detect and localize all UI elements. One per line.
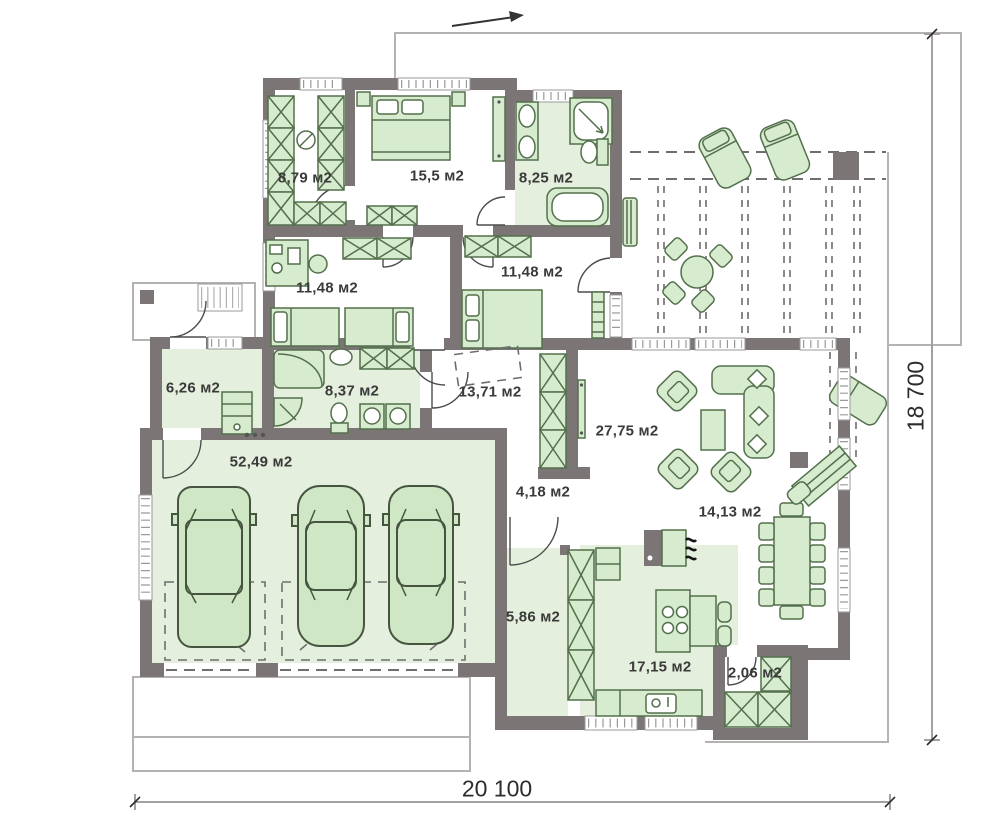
room-label-passage: 5,86 м2 <box>506 609 560 626</box>
room-label-bathroom-1: 8,25 м2 <box>519 170 573 187</box>
driveway-outline <box>133 677 470 771</box>
window <box>632 338 690 350</box>
room-label-wardrobe: 8,79 м2 <box>278 170 332 187</box>
window <box>398 78 470 90</box>
room-label-living: 27,75 м2 <box>596 423 659 440</box>
terrace-table-set <box>661 236 733 313</box>
window <box>139 495 152 600</box>
sun-lounger-1 <box>696 125 754 191</box>
room-label-bedroom-1: 15,5 м2 <box>410 168 464 185</box>
dimension-height: 18 700 <box>903 361 930 431</box>
toilet <box>581 139 608 165</box>
entrance-arrow <box>452 11 524 26</box>
window <box>645 716 697 730</box>
car-sedan-1 <box>292 486 370 646</box>
window <box>208 337 242 349</box>
floor-plan: 8,79 м2 15,5 м2 8,25 м2 11,48 м2 11,48 м… <box>0 0 1000 822</box>
room-label-corridor: 13,71 м2 <box>459 384 522 401</box>
double-bed <box>462 290 542 348</box>
terrace-bench <box>623 198 637 246</box>
window <box>610 295 622 337</box>
room-label-bedroom-3: 11,48 м2 <box>501 264 563 281</box>
single-bed <box>271 308 339 346</box>
coffee-table <box>701 410 725 450</box>
armchair <box>654 368 699 413</box>
armchair <box>655 446 700 491</box>
sun-lounger-3 <box>827 372 890 428</box>
porch-column <box>140 290 154 304</box>
car-suv <box>172 487 256 647</box>
room-label-hall: 4,18 м2 <box>516 484 570 501</box>
window <box>838 368 850 420</box>
radiator <box>592 292 604 338</box>
washer <box>360 404 384 429</box>
bathtub <box>547 188 608 226</box>
window <box>695 338 745 350</box>
mirror <box>578 380 585 438</box>
window <box>300 78 342 90</box>
garage <box>165 486 465 670</box>
wardrobe-furniture <box>268 96 346 225</box>
toilet <box>331 403 348 433</box>
shower <box>570 98 612 144</box>
window <box>533 90 573 102</box>
bedroom1-furniture <box>357 92 505 225</box>
sun-lounger-2 <box>758 117 812 182</box>
room-label-bathroom-2: 8,37 м2 <box>325 383 379 400</box>
single-bed <box>345 308 413 346</box>
room-label-entry: 6,26 м2 <box>166 380 220 397</box>
dining-table <box>774 517 810 605</box>
car-sedan-2 <box>383 486 459 644</box>
terrace-column <box>833 152 859 180</box>
living-furniture <box>654 366 774 495</box>
room-label-bedroom-2: 11,48 м2 <box>296 280 358 297</box>
window <box>838 548 850 612</box>
dimension-width: 20 100 <box>462 776 532 803</box>
floor-plan-canvas <box>0 0 1000 822</box>
kitchen-counter <box>596 690 702 716</box>
window <box>585 716 637 730</box>
room-label-pantry: 2,06 м2 <box>728 665 782 682</box>
room-label-garage: 52,49 м2 <box>230 454 293 471</box>
room-label-dining: 14,13 м2 <box>699 504 762 521</box>
room-label-kitchen: 17,15 м2 <box>629 659 692 676</box>
corner-bathtub <box>274 350 324 388</box>
dryer <box>386 404 410 429</box>
window <box>800 338 836 350</box>
porch-steps <box>198 284 242 311</box>
